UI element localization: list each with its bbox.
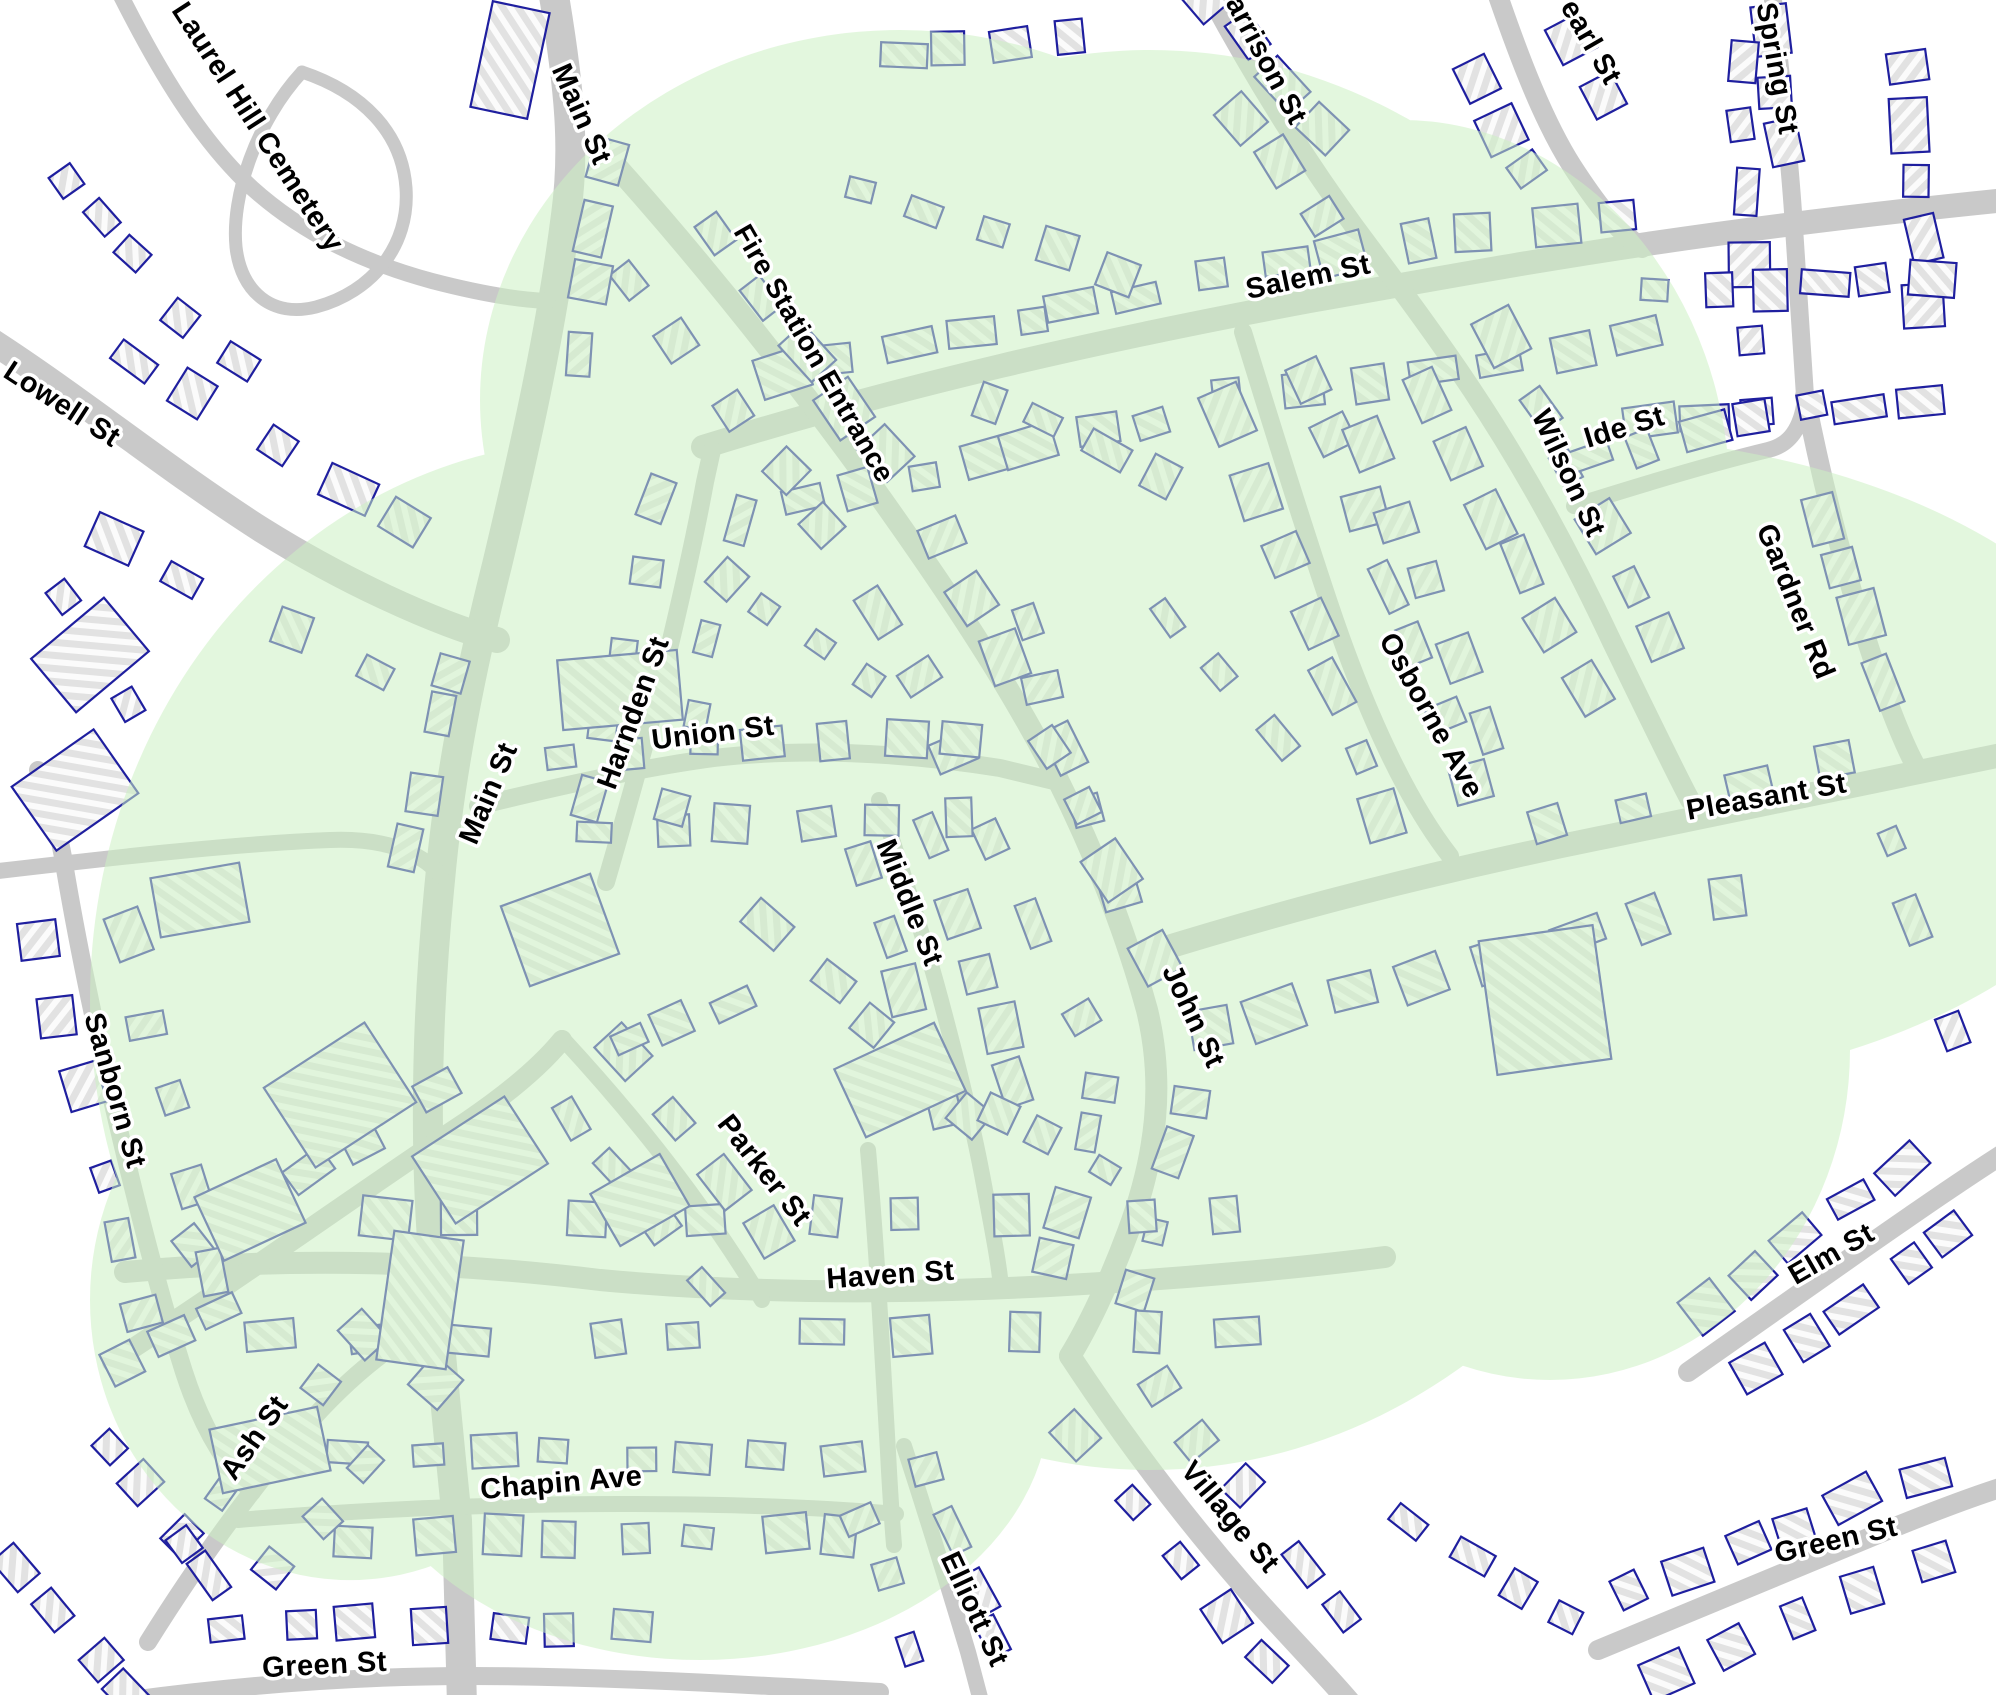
building-footprint xyxy=(36,995,76,1038)
building-footprint xyxy=(160,561,203,599)
building-footprint xyxy=(110,340,158,384)
building-footprint xyxy=(83,198,121,237)
building-footprint xyxy=(1115,1485,1150,1520)
building-footprint xyxy=(1840,1567,1884,1614)
building-footprint xyxy=(1891,1242,1932,1284)
building-footprint xyxy=(1732,399,1769,436)
building-footprint xyxy=(1548,1600,1583,1634)
building-footprint xyxy=(1734,168,1760,216)
building-footprint xyxy=(1903,165,1929,197)
street-label-6: Spring St xyxy=(1750,0,1805,137)
building-footprint xyxy=(1705,272,1733,307)
building-footprint xyxy=(1638,1647,1694,1695)
building-footprint xyxy=(1796,390,1827,419)
building-footprint xyxy=(1889,97,1930,153)
road-green-st-west xyxy=(130,1676,880,1695)
building-footprint xyxy=(1728,40,1759,83)
building-footprint xyxy=(1896,385,1945,418)
building-footprint xyxy=(1282,1541,1325,1588)
building-footprint xyxy=(1904,213,1944,264)
building-footprint xyxy=(1827,1179,1875,1219)
building-footprint xyxy=(1453,54,1501,104)
map-viewport[interactable]: Laurel Hill CemeteryMain StFire Station … xyxy=(0,0,1996,1695)
building-footprint xyxy=(1800,269,1850,297)
building-footprint xyxy=(1661,1548,1714,1596)
building-footprint xyxy=(1450,1537,1496,1577)
building-footprint xyxy=(17,919,60,960)
building-footprint xyxy=(1729,1343,1782,1395)
building-footprint xyxy=(286,1610,317,1640)
map-canvas[interactable]: Laurel Hill CemeteryMain StFire Station … xyxy=(0,0,1996,1695)
building-footprint xyxy=(217,341,260,381)
building-footprint xyxy=(1908,260,1957,298)
building-footprint xyxy=(1935,1011,1970,1052)
building-footprint xyxy=(1913,1541,1956,1583)
building-footprint xyxy=(46,579,82,615)
building-footprint xyxy=(1886,49,1929,85)
building-footprint xyxy=(1163,1542,1199,1579)
building-footprint xyxy=(1055,19,1085,55)
building-footprint xyxy=(1707,1623,1755,1671)
street-label-10: Lowell St xyxy=(0,355,126,454)
building-footprint xyxy=(208,1615,245,1642)
building-footprint xyxy=(31,1588,74,1633)
building-footprint xyxy=(1245,1640,1288,1683)
building-footprint xyxy=(167,368,218,420)
building-footprint xyxy=(1899,1458,1952,1498)
building-footprint xyxy=(1831,394,1887,424)
building-footprint xyxy=(1784,1314,1830,1362)
building-footprint xyxy=(1780,1597,1815,1639)
building-footprint xyxy=(1874,1140,1930,1195)
building-footprint xyxy=(1322,1591,1361,1632)
building-footprint xyxy=(85,512,144,566)
building-footprint xyxy=(1609,1570,1647,1611)
building-footprint xyxy=(1753,269,1788,311)
building-footprint xyxy=(113,235,151,273)
building-footprint xyxy=(111,687,145,722)
building-footprint xyxy=(1725,1521,1771,1564)
building-footprint xyxy=(470,1,549,119)
building-footprint xyxy=(0,1543,40,1592)
building-footprint xyxy=(160,298,200,338)
building-footprint xyxy=(1924,1210,1972,1257)
building-footprint xyxy=(1499,1568,1538,1609)
building-footprint xyxy=(49,163,85,199)
building-footprint xyxy=(896,1632,924,1667)
building-footprint xyxy=(1824,1284,1879,1334)
building-footprint xyxy=(1388,1503,1428,1541)
building-footprint xyxy=(1726,107,1754,142)
building-footprint xyxy=(1737,326,1764,356)
building-footprint xyxy=(1855,263,1890,296)
building-footprint xyxy=(257,425,299,466)
building-footprint xyxy=(334,1603,376,1640)
building-footprint xyxy=(411,1607,448,1645)
street-label-23: Green St xyxy=(261,1646,387,1684)
